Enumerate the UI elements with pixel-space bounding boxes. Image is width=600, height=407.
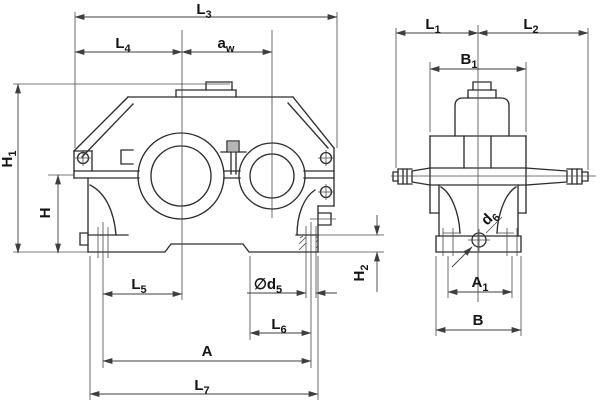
drawing-canvas: L3 L4 aw H1 H H2 L5 ∅d5 (0, 0, 600, 407)
dim-A1: A1 (448, 274, 512, 294)
dim-L1: L1 (396, 16, 478, 36)
dim-label-B: B (473, 312, 484, 329)
dim-label-L5: L5 (131, 276, 146, 296)
gearbox-dimension-drawing: L3 L4 aw H1 H H2 L5 ∅d5 (0, 0, 600, 407)
dim-H1: H1 (0, 84, 19, 253)
dim-aw: aw (182, 35, 272, 55)
dim-L5: L5 (103, 276, 182, 296)
dim-H: H (37, 175, 58, 253)
dim-L4: L4 (75, 35, 182, 55)
dim-L3: L3 (75, 1, 337, 21)
dim-B: B (436, 312, 521, 330)
side-view: L1 L2 B1 d6 A1 B (391, 16, 596, 336)
front-view: L3 L4 aw H1 H H2 L5 ∅d5 (0, 1, 384, 400)
dim-L6: L6 (250, 316, 311, 336)
side-centerlines (391, 25, 596, 302)
dim-label-A: A (202, 343, 213, 360)
housing-joint-bolt (221, 141, 246, 174)
input-shaft (393, 168, 588, 185)
dim-L2: L2 (478, 16, 588, 36)
dim-label-B1: B1 (461, 51, 478, 71)
dim-A: A (103, 343, 311, 361)
dim-L7: L7 (90, 377, 318, 397)
foot-section-hatch (299, 236, 318, 250)
dim-H2: H2 (351, 215, 377, 292)
dim-label-H: H (37, 208, 54, 219)
dim-d5: ∅d5 (247, 276, 337, 296)
dim-label-L3: L3 (196, 1, 211, 21)
bearing-bosses (138, 133, 305, 219)
front-centerlines (98, 30, 316, 368)
dim-label-A1: A1 (472, 274, 489, 294)
dim-label-d6: d6 (478, 206, 503, 231)
breather-cap (455, 82, 509, 136)
dim-label-H1: H1 (0, 151, 19, 168)
dim-label-H2: H2 (351, 265, 371, 282)
